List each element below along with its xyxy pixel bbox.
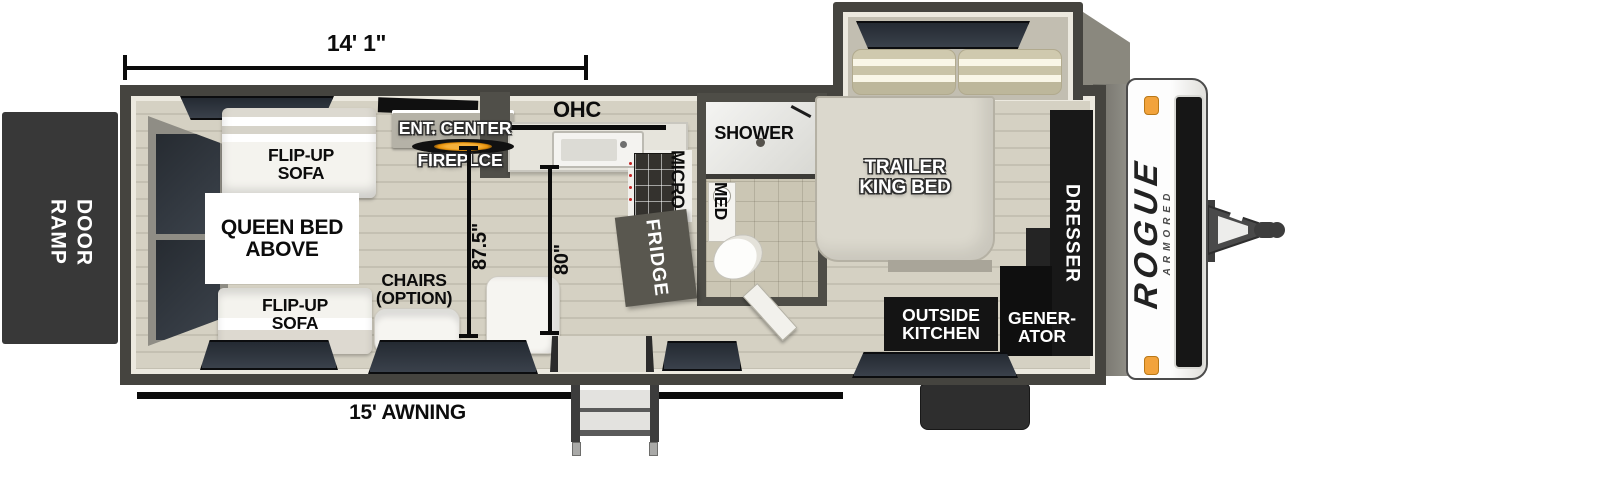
garage-dimension-cap-top <box>459 146 478 150</box>
garage-dimension-label: 87.5" <box>470 202 491 292</box>
marker-light-top <box>1144 96 1159 115</box>
length-dimension-tick-left <box>123 55 127 80</box>
exterior-compartment <box>920 384 1030 430</box>
sink-faucet <box>620 141 627 148</box>
queen-bed-above-label: QUEEN BED ABOVE <box>212 217 352 261</box>
fridge-label: FRIDGE <box>641 218 670 298</box>
garage-bottom-window <box>200 340 338 370</box>
garage-dimension-cap-bottom <box>459 334 478 338</box>
ohc-line <box>510 125 666 130</box>
sink-basin <box>561 139 617 161</box>
brand-logo-sub: ARMORED <box>1162 189 1175 276</box>
brand-logo-main: ROGUE <box>1129 154 1162 311</box>
entry-steps <box>571 384 659 454</box>
brand-logo: ROGUE ARMORED <box>1126 124 1178 340</box>
flip-up-sofa-top-label: FLIP-UP SOFA <box>248 146 354 182</box>
shower-arm <box>791 105 812 118</box>
hitch-a-frame <box>1204 192 1288 270</box>
front-window-panel <box>1174 95 1204 369</box>
length-dimension-label: 14' 1" <box>125 32 588 56</box>
queen-bed-above-box: QUEEN BED ABOVE <box>205 193 359 284</box>
kitchen-dimension-cap-top <box>540 165 559 169</box>
marker-light-bottom <box>1144 356 1159 375</box>
med-label: MED <box>712 176 730 226</box>
bedroom-slide-window <box>856 21 1030 49</box>
outside-kitchen-box: OUTSIDE KITCHEN <box>884 297 998 351</box>
step-rail-right <box>650 384 659 442</box>
entry-door <box>550 336 654 372</box>
ohc-label: OHC <box>545 99 609 122</box>
awning-label: 15' AWNING <box>295 402 520 424</box>
step-rail-left <box>571 384 580 442</box>
micro-label: MICRO <box>668 136 687 222</box>
pillow-left <box>852 49 956 95</box>
living-bottom-window <box>368 340 538 374</box>
hitch-coupler-ball <box>1269 222 1285 238</box>
flip-up-sofa-bottom-label: FLIP-UP SOFA <box>240 296 350 332</box>
fridge: FRIDGE <box>615 209 697 307</box>
pillow-right <box>958 49 1062 95</box>
bedroom-bottom-window <box>852 352 1018 378</box>
length-dimension-line <box>125 66 588 70</box>
floorplan-diagram: RAMP DOOR 14' 1" FLIP-UP SOFA QUEEN BED … <box>0 0 1600 485</box>
length-dimension-tick-right <box>584 55 588 80</box>
hall-bottom-window <box>662 341 742 371</box>
outside-kitchen-label: OUTSIDE KITCHEN <box>889 306 993 343</box>
ramp-door-label: RAMP DOOR <box>44 186 100 278</box>
awning-line <box>137 392 843 399</box>
kitchen-dimension-label: 80" <box>552 228 573 292</box>
step-treads <box>580 390 650 436</box>
step-foot-right <box>649 442 658 456</box>
bed-slide-bump <box>833 2 1083 100</box>
fireplace-label: FIREPLCE <box>410 151 510 170</box>
shower-label: SHOWER <box>700 124 808 143</box>
step-foot-left <box>572 442 581 456</box>
ent-center-label: ENT. CENTER <box>390 119 520 138</box>
bed-slide-interior <box>843 12 1073 100</box>
king-bed-label: TRAILER KING BED <box>845 158 965 198</box>
cooktop-knobs <box>629 162 632 165</box>
bed-foot-bench <box>888 260 992 272</box>
kitchen-dimension-cap-bottom <box>540 331 559 335</box>
ramp-door: RAMP DOOR <box>2 112 118 344</box>
dresser-label: DRESSER <box>1062 184 1082 283</box>
generator-label: GENER-ATOR <box>996 309 1088 346</box>
chairs-option-label: CHAIRS (OPTION) <box>364 271 464 307</box>
